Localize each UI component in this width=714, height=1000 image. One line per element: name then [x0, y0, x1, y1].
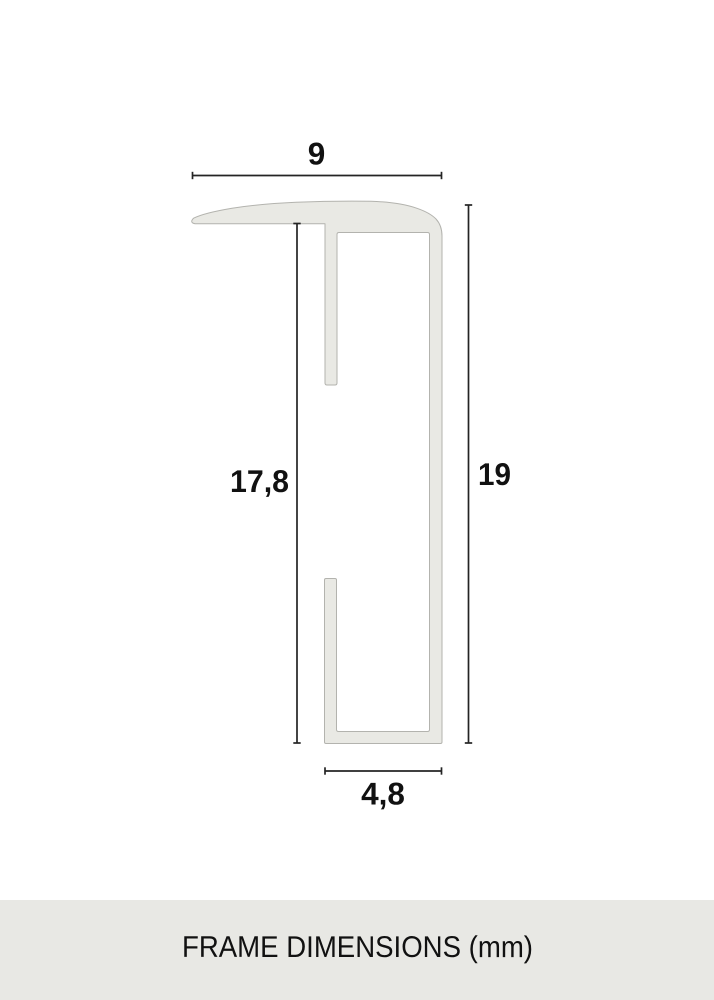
svg-text:FRAME DIMENSIONS (mm): FRAME DIMENSIONS (mm): [182, 931, 533, 964]
svg-text:19: 19: [478, 456, 511, 492]
svg-text:9: 9: [308, 135, 326, 171]
svg-text:17,8: 17,8: [230, 463, 289, 499]
svg-text:4,8: 4,8: [361, 775, 405, 811]
